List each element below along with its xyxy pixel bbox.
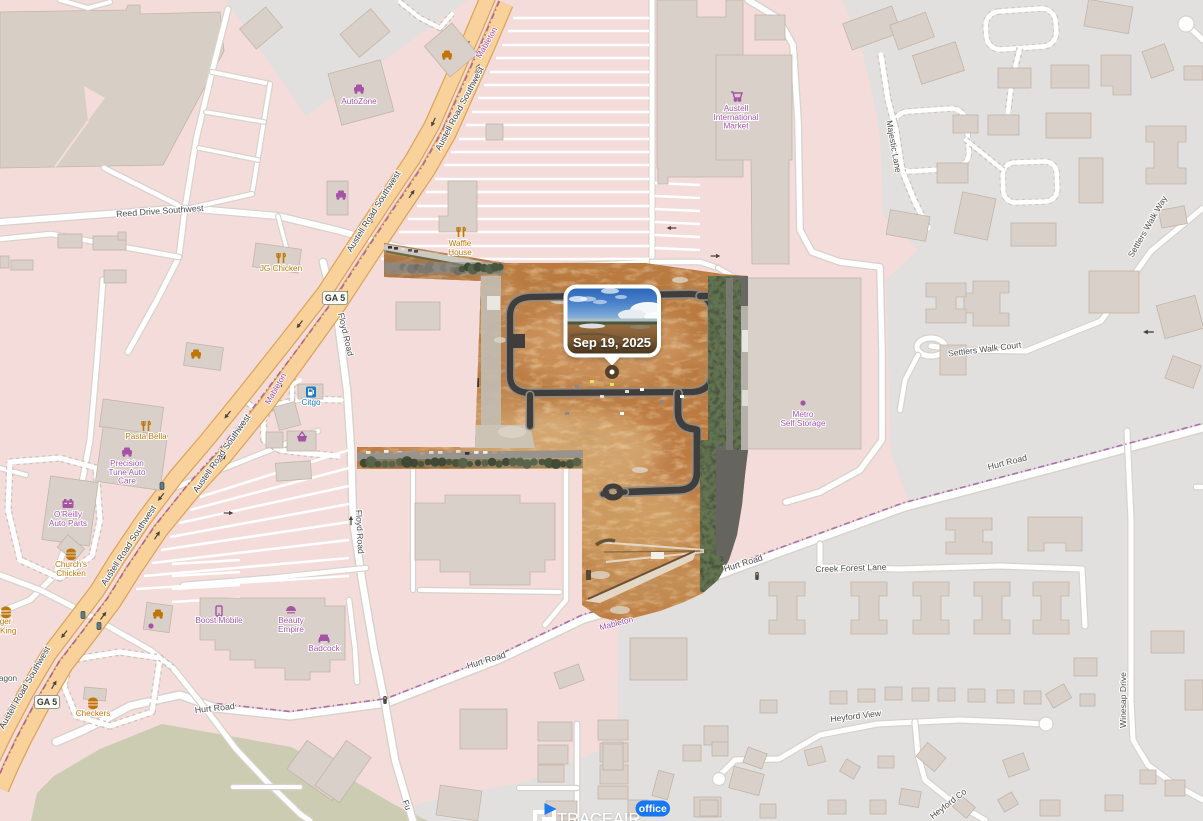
svg-text:agon: agon — [0, 674, 18, 683]
svg-text:Beauty: Beauty — [278, 616, 304, 625]
svg-text:Church's: Church's — [55, 560, 87, 569]
svg-text:office: office — [639, 803, 667, 815]
svg-text:House: House — [448, 248, 472, 257]
svg-text:TRACEAIR: TRACEAIR — [557, 811, 641, 821]
svg-text:Winesap Drive: Winesap Drive — [1118, 672, 1128, 728]
svg-text:JG Chicken: JG Chicken — [260, 264, 303, 273]
svg-text:AutoZone: AutoZone — [341, 97, 377, 106]
svg-text:International: International — [713, 113, 758, 122]
svg-text:O'Reilly: O'Reilly — [54, 510, 83, 519]
svg-text:Burger: Burger — [0, 617, 12, 626]
svg-text:Badcock: Badcock — [308, 644, 340, 653]
svg-text:Sep 19, 2025: Sep 19, 2025 — [573, 335, 651, 350]
svg-text:Metro: Metro — [793, 410, 814, 419]
svg-text:Citgo: Citgo — [301, 398, 321, 407]
svg-text:Tune Auto: Tune Auto — [108, 468, 145, 477]
svg-text:Empire: Empire — [278, 625, 304, 634]
svg-text:Care: Care — [118, 477, 136, 486]
svg-text:GA 5: GA 5 — [37, 697, 57, 707]
svg-text:Market: Market — [723, 122, 749, 131]
svg-text:Checkers: Checkers — [76, 709, 111, 718]
svg-text:King: King — [0, 627, 17, 636]
svg-text:Austell: Austell — [724, 104, 749, 113]
svg-text:Boost Mobile: Boost Mobile — [195, 616, 243, 625]
svg-text:Waffle: Waffle — [449, 239, 472, 248]
svg-text:Auto Parts: Auto Parts — [49, 519, 87, 528]
svg-text:Chicken: Chicken — [56, 569, 86, 578]
svg-text:Self Storage: Self Storage — [780, 419, 826, 428]
svg-text:Pasta Bella: Pasta Bella — [125, 432, 167, 441]
svg-text:GA 5: GA 5 — [325, 293, 345, 303]
svg-text:Precision: Precision — [110, 459, 144, 468]
